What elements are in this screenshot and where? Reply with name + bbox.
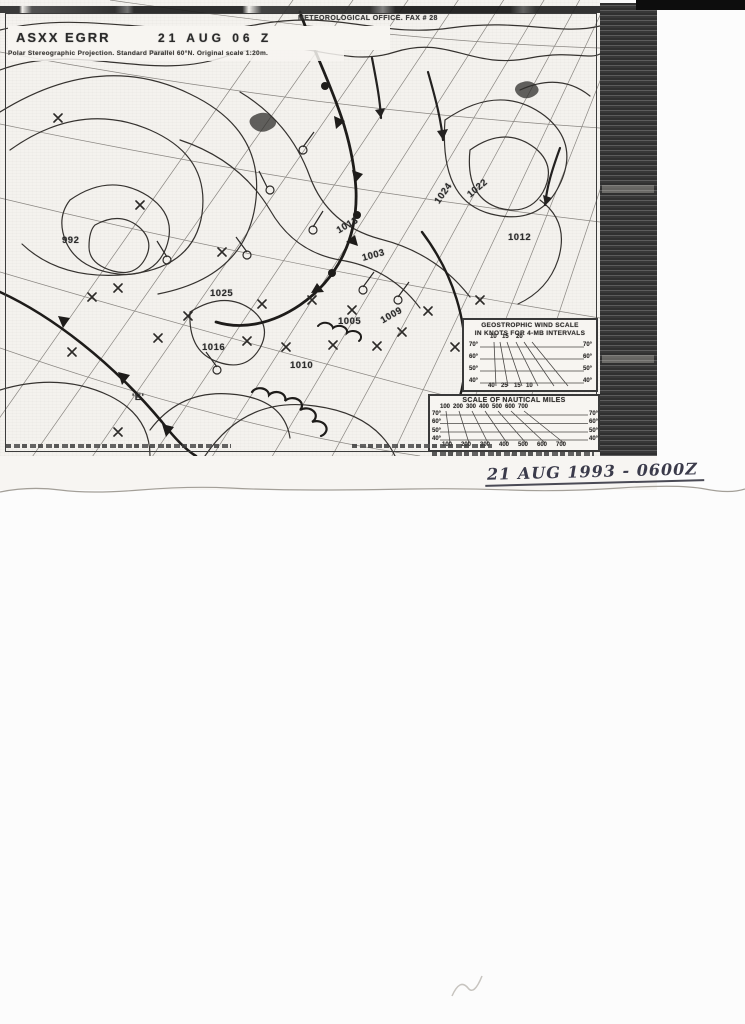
- wind-scale-tick: 10: [490, 334, 497, 340]
- pressure-label: 992: [62, 235, 79, 246]
- illegible-fine-print: [6, 444, 231, 448]
- miles-scale-tick: 60°: [589, 419, 598, 425]
- fax-scan-artifact-line: [0, 6, 638, 13]
- pressure-label: 1016: [202, 342, 225, 353]
- miles-scale-tick: 40°: [432, 436, 441, 442]
- pressure-label: 1009: [379, 305, 405, 326]
- wind-scale-tick: 20: [516, 334, 523, 340]
- pressure-label: 1005: [338, 316, 361, 327]
- miles-scale-tick: 40°: [589, 436, 598, 442]
- pressure-label: 1022: [465, 177, 490, 200]
- fax-band-smudge: [602, 185, 654, 193]
- fax-band-smudge: [602, 355, 654, 363]
- miles-scale-tick: 500: [492, 404, 502, 410]
- fax-band-artifact: [600, 3, 657, 456]
- pressure-label: 1010: [290, 360, 313, 371]
- pressure-label: 1012: [508, 232, 531, 243]
- wind-scale-tick: 70°: [583, 342, 592, 348]
- miles-scale-tick: 70°: [432, 411, 441, 417]
- miles-scale-tick: 600: [505, 404, 515, 410]
- miles-scale-tick: 70°: [589, 411, 598, 417]
- pressure-label: 'E': [132, 392, 144, 403]
- miles-scale-tick: 400: [499, 442, 509, 448]
- wind-scale-tick: 40°: [469, 378, 478, 384]
- wind-scale-tick: 50°: [469, 366, 478, 372]
- wind-scale-tick: 10: [526, 383, 533, 389]
- miles-scale-tick: 700: [518, 404, 528, 410]
- pressure-label: 1024: [432, 181, 454, 206]
- miles-scale-tick: 200: [453, 404, 463, 410]
- wind-scale-tick: 15: [502, 334, 509, 340]
- wind-scale-diagram: [464, 320, 596, 390]
- scan-edge-artifact: [636, 0, 745, 10]
- miles-scale-tick: 400: [479, 404, 489, 410]
- wind-scale-tick: 60°: [583, 354, 592, 360]
- geostrophic-wind-scale-legend: GEOSTROPHIC WIND SCALE IN KNOTS FOR 4-MB…: [462, 318, 598, 392]
- illegible-fine-print: [352, 444, 492, 448]
- miles-scale-tick: 100: [440, 404, 450, 410]
- miles-scale-tick: 600: [537, 442, 547, 448]
- wind-scale-tick: 40: [488, 383, 495, 389]
- wind-scale-tick: 15: [514, 383, 521, 389]
- scanned-fax-page: ASXX EGRR 21 AUG 06 Z METEOROLOGICAL OFF…: [0, 0, 745, 1024]
- wind-scale-tick: 25: [501, 383, 508, 389]
- pressure-label: 1013: [335, 215, 361, 236]
- wind-scale-tick: 40°: [583, 378, 592, 384]
- miles-scale-tick: 500: [518, 442, 528, 448]
- wind-scale-tick: 50°: [583, 366, 592, 372]
- miles-scale-tick: 700: [556, 442, 566, 448]
- wind-scale-tick: 60°: [469, 354, 478, 360]
- miles-scale-tick: 60°: [432, 419, 441, 425]
- miles-scale-tick: 50°: [432, 428, 441, 434]
- miles-scale-tick: 300: [466, 404, 476, 410]
- pressure-label: 1003: [361, 247, 386, 264]
- miles-scale-tick: 50°: [589, 428, 598, 434]
- wind-scale-tick: 70°: [469, 342, 478, 348]
- weather-chart-scan: ASXX EGRR 21 AUG 06 Z METEOROLOGICAL OFF…: [0, 0, 600, 456]
- pencil-mark: [450, 970, 490, 1000]
- pressure-label: 1025: [210, 288, 233, 299]
